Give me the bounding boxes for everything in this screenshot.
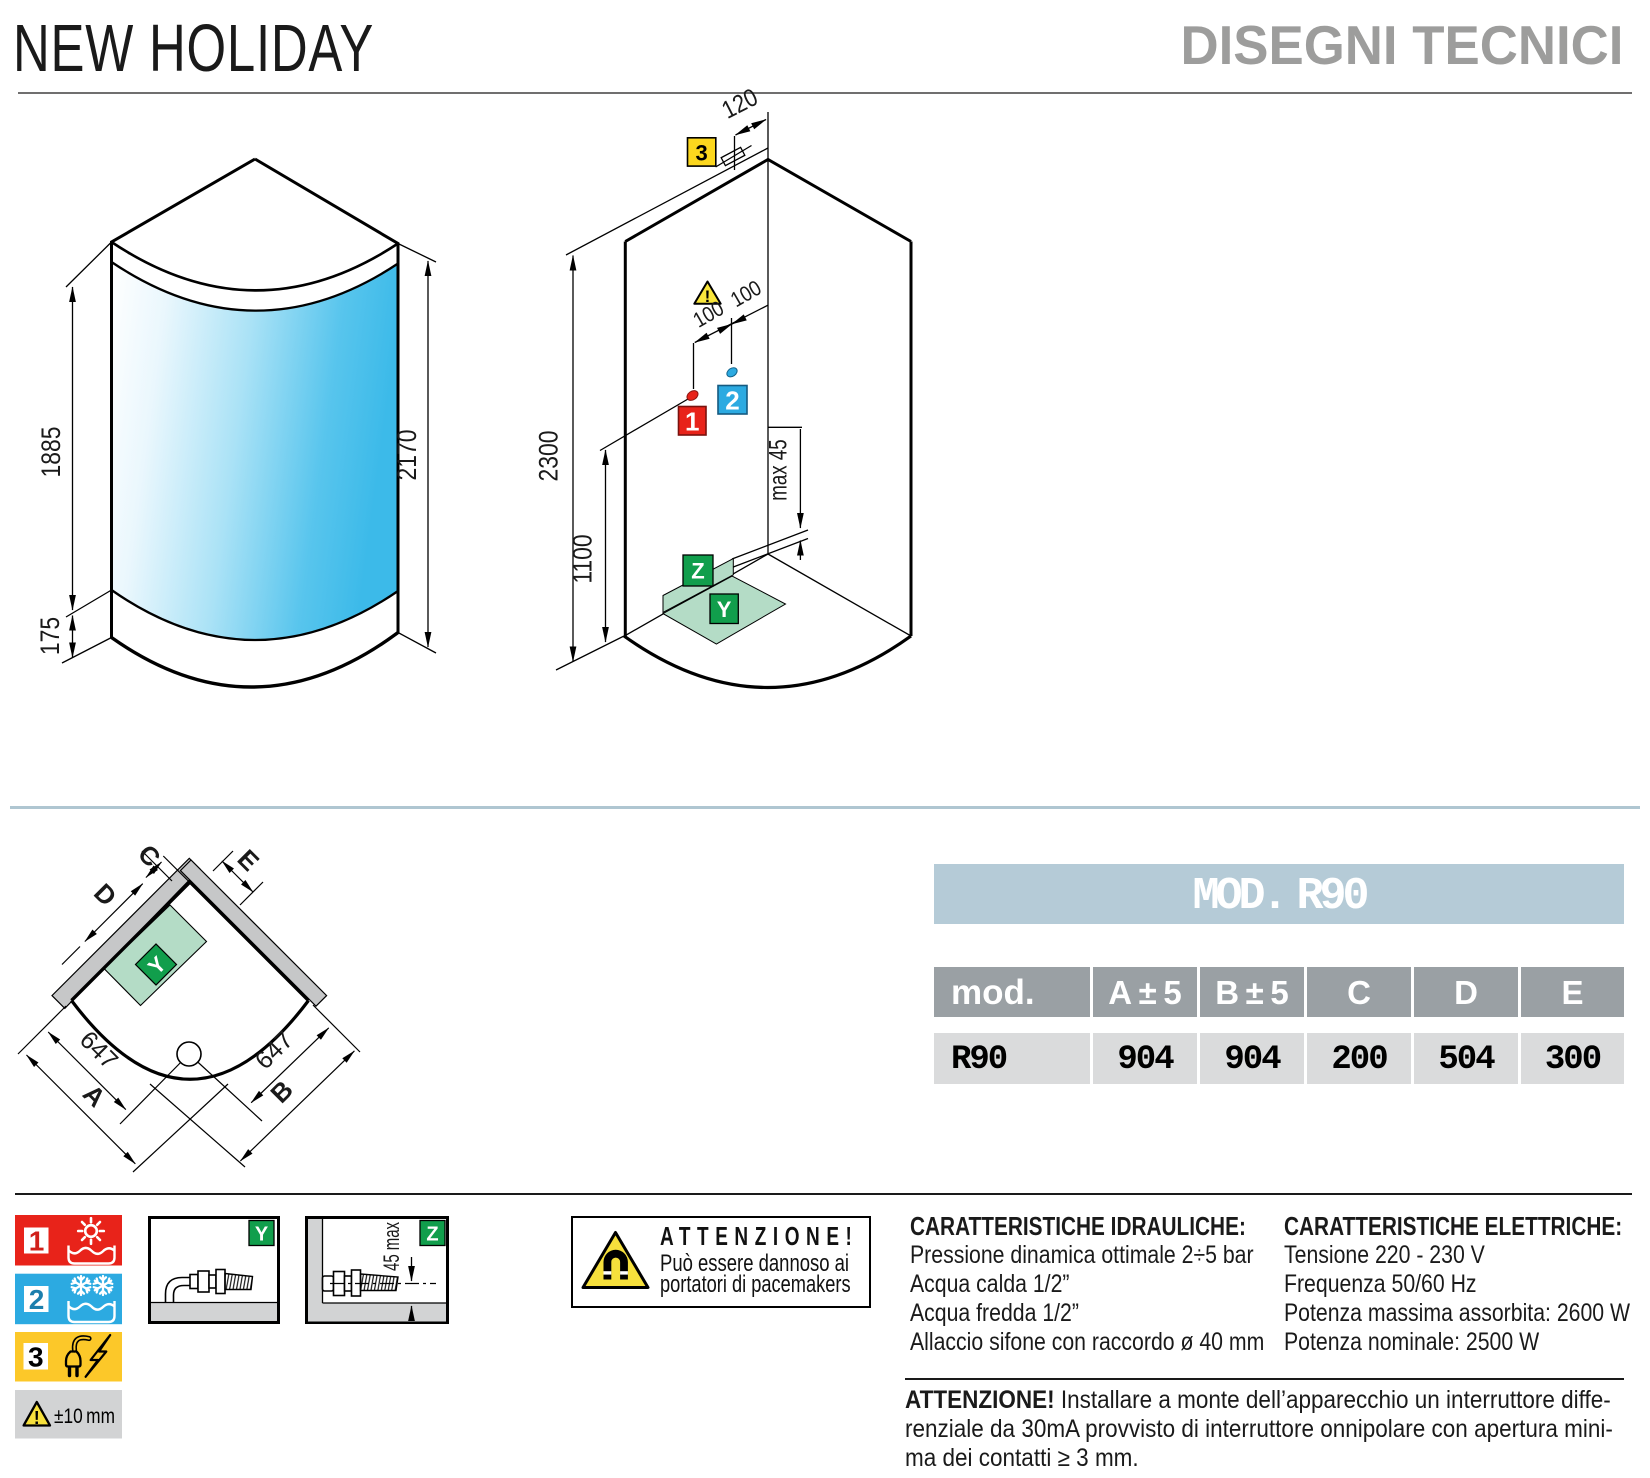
svg-text:1885: 1885: [36, 426, 66, 477]
svg-text:E: E: [232, 843, 265, 876]
svg-text:120: 120: [717, 85, 762, 124]
svg-text:3: 3: [28, 1342, 44, 1373]
svg-text:100: 100: [727, 276, 766, 312]
svg-text:175: 175: [35, 617, 65, 655]
svg-text:45 max: 45 max: [379, 1222, 404, 1271]
svg-text:2300: 2300: [534, 430, 564, 481]
svg-text:1100: 1100: [568, 534, 598, 583]
svg-text:Z: Z: [426, 1224, 438, 1246]
svg-text:1: 1: [685, 407, 699, 437]
svg-text:C: C: [132, 838, 167, 873]
svg-text:!: !: [34, 1408, 40, 1428]
svg-text:max 45: max 45: [764, 439, 792, 500]
svg-text:Y: Y: [255, 1224, 269, 1246]
svg-text:2: 2: [29, 1284, 45, 1315]
svg-text:±10 mm: ±10 mm: [54, 1405, 115, 1428]
svg-text:D: D: [88, 877, 122, 911]
svg-text:2: 2: [725, 386, 739, 416]
svg-text:A: A: [77, 1078, 112, 1113]
svg-text:Z: Z: [691, 559, 704, 584]
svg-text:B: B: [264, 1074, 298, 1108]
svg-text:3: 3: [695, 140, 707, 165]
svg-text:2170: 2170: [392, 429, 422, 480]
svg-text:647: 647: [250, 1026, 299, 1075]
svg-text:647: 647: [74, 1026, 123, 1075]
svg-text:1: 1: [29, 1226, 45, 1257]
svg-text:Y: Y: [717, 597, 732, 622]
